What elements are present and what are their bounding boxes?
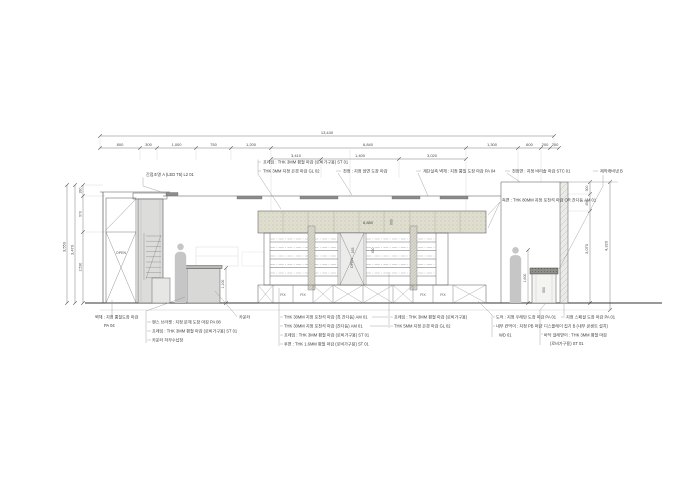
dim-left-inner: 3,470 — [70, 244, 75, 255]
dim-band-width: 6,880 — [363, 220, 374, 225]
dim-row2-9: 200 — [552, 142, 559, 147]
light-fixture — [237, 197, 262, 200]
stone-post — [308, 226, 315, 290]
dim-row2-7: 600 — [526, 142, 533, 147]
shelving-unit: 6,880 600 OPEN — [258, 211, 486, 303]
dimension-text-right: 300 450 3,070 4,320 — [584, 186, 609, 254]
dim-counter-height: 1,100 — [221, 280, 225, 289]
dim-left-outer: 3,550 — [62, 241, 67, 252]
callout-mid2-glass: THK 5MM 지정 은경 마감 GL 02 — [394, 323, 451, 329]
left-shelf-bay — [270, 233, 338, 285]
dim-right-seg-2: 3,070 — [584, 243, 589, 254]
callout-unit-back: 후면 : THK 1.6MM 평철 마감 (로비가구용) ST 01 — [284, 341, 370, 347]
callouts-bottom-left: 벽체 : 지정 뿜칠도장 마감 PA 04 카운터 펜스 브라켓 : 지정 분체… — [95, 314, 251, 343]
callout-wall-paint-l1: 벽체 : 지정 뿜칠도장 마감 — [95, 314, 139, 320]
dim-right-seg-0: 300 — [585, 186, 589, 192]
callouts-bottom-right: 도어 : 지정 우레탄 도장 마감 PA 01 내부 칸막이 : 지정 PB 마… — [496, 314, 616, 347]
dim-left-seg-1: 970 — [79, 211, 83, 217]
callout-fence-bracket: 펜스 브라켓 : 지정 분체 도장 마감 PA 08 — [152, 319, 221, 325]
dimension-text-top: 13,440 800 300 1,000 750 1,200 6,840 1,3… — [117, 130, 559, 158]
callout-display-fixture: 디스플레이 집기 B (내부 콘센트 설치) — [544, 323, 609, 329]
fix-label: FIX — [280, 293, 286, 297]
dim-right-height: 1,600 — [523, 274, 527, 283]
dim-row2-2: 1,000 — [171, 142, 182, 147]
right-shelf-bay — [366, 233, 436, 285]
callout-barrisol-ceiling: 천장면 : 지정 바리솔 마감 STC 01 — [512, 168, 571, 174]
dim-row2-8: 200 — [542, 142, 549, 147]
dim-row2-1: 300 — [145, 142, 152, 147]
callout-special-paint: 지정 스페셜 도장 마감 PA 01 — [566, 314, 616, 320]
dim-row3-1: 1,400 — [355, 153, 366, 158]
dim-mid-a: 165 — [351, 248, 355, 254]
counter-top-slab — [183, 266, 222, 269]
open-label-wall: OPEN — [116, 251, 127, 255]
callout-stair-wall: 계단실측 벽체 : 지정 뿜칠 도장 마감 PA 04 — [423, 168, 496, 174]
dim-cabinet-width: 550 — [542, 287, 546, 293]
callout-unit-frame: 프레임 : THK 3MM 평철 마감 (로비가구용) ST 01 — [284, 332, 370, 338]
callout-door-urethane: 도어 : 지정 우레탄 도장 마감 PA 01 — [496, 314, 557, 320]
callout-cabinet-b: 제작캐비넷 B — [600, 168, 623, 174]
dimension-text-left: 3,550 3,470 280 970 2,530 — [62, 188, 83, 272]
callout-counter-storage: 카운터 하부수납장 — [152, 337, 184, 343]
stair-column — [138, 199, 170, 303]
person-silhouette-right — [510, 247, 521, 303]
dim-row2-6: 1,300 — [487, 142, 498, 147]
stair-base-box — [152, 278, 170, 303]
person-silhouette-left — [175, 244, 186, 304]
callout-inner-partition-code: WD 01 — [499, 333, 512, 338]
dim-band-height: 600 — [390, 219, 394, 225]
base-cabinet-row: FIX FIX FIX FIX — [258, 285, 486, 303]
dimension-chain-left — [65, 183, 106, 305]
dim-row3-0: 3,410 — [291, 153, 302, 158]
callout-side-stone: 측면 : THK 80MM 지정 포천석 마감 OR 잔다듬 AM 01 — [502, 197, 597, 203]
light-fixture — [392, 197, 420, 200]
dim-left-seg-0: 280 — [79, 188, 83, 194]
counter-body — [187, 269, 220, 304]
dim-row2-3: 750 — [210, 142, 217, 147]
callout-mid2-frame: 프레임 : THK 3MM 평철 마감 (로비가구용) — [394, 314, 468, 320]
dim-row2-0: 800 — [117, 142, 124, 147]
callout-mirror-glass: THK 3MM 지정 은경 마감 GL 02 — [263, 168, 320, 174]
stone-post — [410, 226, 417, 290]
callouts-bottom-mid: THK 30MM 지정 포천석 마감 (혹 잔다듬) AM 01 THK 30M… — [284, 314, 468, 347]
callout-counter-frame: 프레임 : THK 3MM 평철 마감 (로비가구용) ST 01 — [152, 328, 238, 334]
door-swing-marks — [258, 285, 486, 303]
floor-line — [85, 303, 662, 310]
light-fixture — [440, 197, 468, 200]
callout-baseboard-l1: 바닥 걸레받이 : THK 3MM 평철 마감 — [544, 332, 607, 338]
callout-inner-partition: 내부 칸막이 : 지정 PB 마감 — [496, 323, 542, 329]
callout-indirect-light: 간접조명 A (LED T5) L2 01 — [146, 171, 194, 177]
callout-stone-a: THK 30MM 지정 포천석 마감 (혹 잔다듬) AM 01 — [284, 314, 368, 320]
cabinet-top — [530, 268, 558, 274]
fix-label: FIX — [420, 293, 426, 297]
callout-wall-paint-l2: PA 04 — [104, 323, 115, 328]
callout-frame-flatbar: 프레임 : THK 3MM 평철 마감 (로비가구용) ST 01 — [263, 159, 349, 165]
back-counter-equipment — [196, 247, 264, 266]
light-fixture — [300, 197, 338, 200]
dim-mid-b: 450 — [371, 248, 375, 254]
elevation-drawing: 13,440 800 300 1,000 750 1,200 6,840 1,3… — [0, 0, 700, 495]
open-label-unit: OPEN — [350, 258, 354, 269]
fix-label: FIX — [440, 293, 446, 297]
dim-row2-5: 6,840 — [363, 142, 374, 147]
callout-stone-b: THK 30MM 지정 포천석 마감 (잔다듬) AM 01 — [284, 323, 363, 329]
elevation-sheet: 13,440 800 300 1,000 750 1,200 6,840 1,3… — [0, 0, 700, 495]
dim-row2-4: 1,200 — [246, 142, 257, 147]
callout-ceiling-paint: 천정 : 지정 암면 도장 마감 — [343, 168, 388, 174]
indirect-light-fixture — [166, 193, 178, 196]
callout-baseboard-l2: (로비가구용) ST 01 — [550, 340, 584, 346]
dim-right-outer: 4,320 — [604, 240, 609, 251]
fix-label: FIX — [300, 293, 306, 297]
display-cabinet-b — [530, 268, 558, 303]
dim-total-width: 13,440 — [321, 130, 334, 135]
dim-left-seg-2: 2,530 — [79, 263, 83, 272]
dim-row3-2: 3,020 — [427, 153, 438, 158]
callout-counter: 카운터 — [239, 314, 251, 320]
